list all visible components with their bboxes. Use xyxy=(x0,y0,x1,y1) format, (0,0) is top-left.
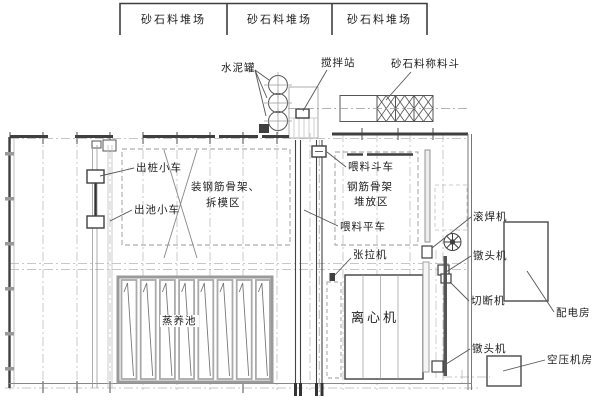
air-compressor-room-label: 空压机房 xyxy=(547,354,593,366)
cage-demold-zone-label-1: 装钢筋骨架、 xyxy=(191,181,260,193)
centrifuge-structure xyxy=(345,275,423,379)
steam-pool-structure xyxy=(118,277,272,382)
pool-out-cart-label: 出池小车 xyxy=(134,204,180,216)
heading-machine-bottom-label: 镦头机 xyxy=(472,343,507,355)
stockyard-1-label: 砂石料堆场 xyxy=(141,11,206,27)
seam-welder-label: 滚焊机 xyxy=(473,211,508,223)
mixing-station-label: 搅拌站 xyxy=(321,57,356,69)
heading-machine-top-label: 镦头机 xyxy=(473,250,508,262)
right-equipment xyxy=(422,150,471,378)
cage-demold-zone-label-2: 拆模区 xyxy=(206,197,241,209)
cement-tank-leaders xyxy=(255,70,269,116)
steam-pool-label: 蒸养池 xyxy=(160,315,199,327)
mixing-station-structure xyxy=(259,70,327,138)
pile-out-cart-label: 出桩小车 xyxy=(136,162,182,174)
floor-plan: 砂石料堆场 砂石料堆场 砂石料堆场 水泥罐 搅拌站 砂石料称料斗 出桩小车 出池… xyxy=(0,0,600,401)
cement-tank-label: 水泥罐 xyxy=(221,62,256,74)
center-tracks xyxy=(296,140,327,396)
centrifuge-label: 离心机 xyxy=(351,312,399,327)
stockyard-2: 砂石料堆场 xyxy=(227,3,332,35)
feed-flat-cart-label: 喂料平车 xyxy=(340,221,386,233)
tensioning-machine-label: 张拉机 xyxy=(353,249,388,261)
cage-storage-zone-label-1: 钢筋骨架 xyxy=(347,181,393,193)
power-room-label: 配电房 xyxy=(556,307,591,319)
feed-hopper-cart-label: 喂料斗车 xyxy=(348,161,394,173)
aggregate-conveyor xyxy=(340,72,433,122)
stockyard-3-label: 砂石料堆场 xyxy=(347,11,412,27)
cage-storage-zone-label-2: 堆放区 xyxy=(354,196,389,208)
stockyard-2-label: 砂石料堆场 xyxy=(247,11,312,27)
wall-box-large xyxy=(103,140,116,151)
wall-box-small xyxy=(92,141,101,148)
stockyard-3: 砂石料堆场 xyxy=(332,3,427,35)
plan-linework xyxy=(0,0,600,401)
stockyard-1: 砂石料堆场 xyxy=(120,3,227,35)
cutting-machine-label: 切断机 xyxy=(471,295,506,307)
aggregate-hopper-label: 砂石料称料斗 xyxy=(391,58,460,70)
